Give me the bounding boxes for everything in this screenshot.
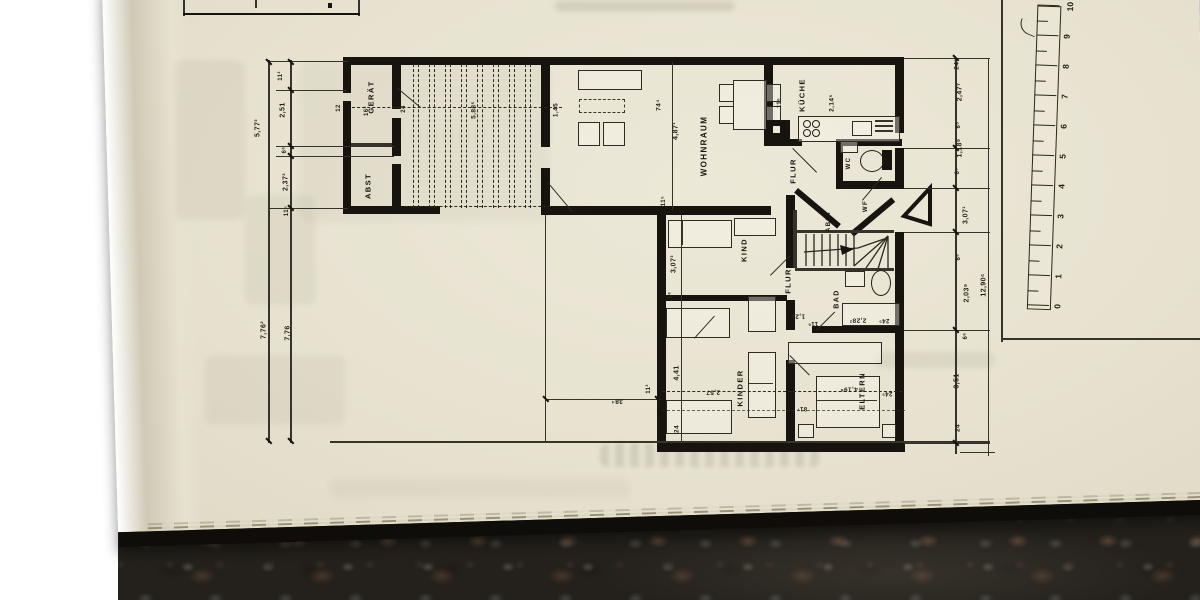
bed-pillow-line [682, 221, 683, 245]
dim-label: 2,51 [280, 102, 287, 117]
scale-number: 0 [1052, 304, 1062, 309]
dim-label: 6⁶ [668, 292, 674, 299]
dimension-line [276, 90, 346, 91]
wall-segment [657, 206, 666, 451]
scale-bar: 012345678910 [1014, 1, 1085, 321]
dim-label: 12 [336, 104, 342, 111]
dimension-line [904, 58, 990, 59]
dimension-line [268, 60, 270, 443]
dim-label: 6⁶ [963, 333, 969, 340]
bed-divider [817, 400, 877, 401]
pergola-beam [429, 64, 435, 208]
wall-segment [541, 57, 550, 147]
room-label-wohnraum: WOHNRAUM [700, 116, 709, 177]
nightstand [882, 424, 896, 438]
dim-label: 24 [674, 425, 681, 433]
furniture-armchair [603, 122, 625, 146]
wall-segment [343, 57, 904, 65]
stove-burner [812, 120, 820, 128]
wall-segment [764, 139, 802, 146]
room-label-abst-1: ABST [364, 173, 373, 199]
dim-label: 2,47⁷ [957, 83, 964, 102]
dimension-line [681, 215, 682, 441]
bad-washbasin [845, 271, 865, 287]
room-label-kinder: KINDER [736, 369, 745, 406]
dimension-line [545, 215, 546, 441]
dim-label: 11⁶ [808, 320, 818, 326]
kitchen-drainer [875, 120, 893, 122]
kitchen-drainer [875, 130, 893, 132]
scale-number: 7 [1060, 94, 1070, 99]
dim-label: 2,14⁵ [829, 94, 836, 112]
wall-segment [786, 360, 795, 445]
dim-label: 11² [278, 71, 284, 81]
dim-label: 24⁵ [954, 58, 961, 69]
room-label-kueche: KÜCHE [798, 78, 807, 112]
wall-segment [392, 164, 401, 212]
dim-label: 24⁵ [882, 390, 893, 396]
dim-label: 4,41 [674, 365, 681, 380]
scale-number: 1 [1053, 274, 1063, 279]
dim-label: 6⁶ [956, 254, 962, 261]
furniture-table [579, 99, 625, 113]
dimension-line [904, 443, 990, 444]
furniture-chair [719, 106, 734, 124]
fridge-detail [773, 126, 780, 133]
wall-segment [657, 443, 905, 452]
dimension-line [988, 58, 989, 456]
room-label-abst-2: ABST [826, 210, 832, 232]
dim-label: 3,51 [954, 373, 961, 388]
room-label-flur-1: FLUR [789, 158, 798, 184]
stair-direction-arrow [840, 245, 854, 255]
wardrobe-divider [749, 383, 773, 384]
scale-number: 2 [1054, 244, 1064, 249]
photo-of-book-floor-plan: 012345678910 GERÄTABSTWOHNRAUMKÜCHEFLURW… [0, 0, 1200, 600]
dimension-line [268, 208, 348, 209]
dim-label: 4,19⁸ [840, 386, 858, 393]
dimension-line [268, 61, 348, 62]
wall-segment [895, 148, 904, 189]
dim-label: 2,57 [706, 389, 720, 396]
dimension-line [904, 330, 990, 331]
pergola-beam [461, 64, 467, 208]
stove-burner [803, 129, 811, 137]
dim-label: 16³ [364, 106, 370, 116]
bad-toilet [871, 270, 891, 296]
wall-segment-diagonal [794, 188, 841, 229]
wall-segment [392, 118, 401, 156]
furniture-chair [719, 84, 734, 102]
cropped-drawing-mark [328, 3, 332, 8]
double-bed [816, 376, 880, 428]
dimension-line [904, 232, 990, 233]
dim-label: 6⁶ [282, 147, 288, 154]
wall-segment [541, 206, 771, 215]
dim-label: 2,28² [850, 317, 867, 324]
dim-label: 81⁷ [797, 405, 807, 411]
furniture-armchair [578, 122, 600, 146]
stove-burner [803, 120, 811, 128]
dim-label: 24 [955, 424, 962, 432]
room-label-wc: WC [846, 157, 852, 170]
dim-label: 38⁴ [611, 398, 623, 405]
dim-label: 6⁵ [956, 122, 962, 129]
wardrobe [788, 342, 882, 364]
dimension-line [960, 452, 995, 453]
scale-number: 8 [1061, 64, 1071, 69]
pergola-beam [493, 64, 499, 208]
furniture-cabinet [578, 70, 642, 90]
scale-number: 10 [1065, 2, 1075, 12]
wall-segment [812, 326, 900, 333]
kitchen-sink [852, 121, 872, 136]
sheet-border [1001, 0, 1003, 342]
dim-label: 12,90⁶ [981, 273, 988, 296]
pergola-beam [509, 64, 515, 208]
wardrobe [734, 218, 776, 236]
furniture-dining-table [733, 80, 767, 130]
dim-label: 11⁵ [661, 196, 667, 206]
bed [668, 220, 732, 248]
cropped-drawing-line [255, 0, 257, 8]
entrance-arrow [900, 184, 940, 230]
dim-label: 1,26 [791, 313, 805, 320]
dim-label: 7,76 [285, 325, 292, 340]
floor-plan-drawing: 012345678910 GERÄTABSTWOHNRAUMKÜCHEFLURW… [0, 0, 1200, 600]
dim-label: 7,76² [261, 321, 268, 339]
scale-number: 9 [1062, 34, 1072, 39]
dim-label: 2,03⁹ [964, 284, 971, 303]
room-label-kind: KIND [740, 238, 749, 262]
room-label-bad: BAD [834, 289, 841, 308]
dim-label: 3,07¹ [963, 206, 970, 224]
room-label-eltern: ELTERN [858, 372, 867, 410]
sheet-border [1001, 338, 1200, 340]
dim-label: 1,18⁹ [957, 139, 964, 158]
dim-label: 5,77³ [255, 119, 262, 137]
dimension-line [352, 107, 562, 108]
stair-treads [796, 232, 898, 272]
scale-number: 6 [1059, 124, 1069, 129]
dimension-line [290, 60, 292, 443]
stove-burner [812, 129, 820, 137]
wardrobe [748, 352, 776, 418]
dimension-line [545, 399, 661, 400]
dimension-line [662, 410, 905, 411]
dim-label: 11³ [646, 384, 652, 394]
dim-label: 3,07³ [671, 255, 678, 273]
dimension-line [330, 441, 990, 443]
scale-number: 3 [1055, 214, 1065, 219]
room-label-flur-2: FLUR [784, 268, 793, 294]
dimension-line [904, 148, 990, 149]
dim-label: 24 [401, 105, 407, 112]
kitchen-drainer [875, 125, 893, 127]
dim-label: 2,37³ [283, 173, 290, 191]
dimension-line [904, 188, 990, 189]
dim-label: 5,88⁵ [471, 101, 478, 119]
toilet-bowl [860, 150, 884, 172]
nightstand [798, 424, 814, 438]
dim-label: 11⁶ [777, 98, 783, 108]
dim-label: 4,87¹ [673, 122, 680, 140]
pergola-edge [405, 206, 551, 207]
scale-number: 4 [1056, 184, 1066, 189]
dim-label: 24⁵ [879, 317, 890, 323]
scale-number: 5 [1057, 154, 1067, 159]
dim-label: 11⁵ [284, 206, 290, 216]
wall-segment [392, 57, 401, 109]
pergola-beam [445, 64, 451, 208]
wall-segment [343, 57, 351, 93]
pergola-beam [413, 64, 419, 208]
room-label-wf: WF [863, 200, 869, 212]
dim-label: 1,45 [553, 103, 560, 117]
dim-label: 6⁵ [955, 168, 961, 175]
dim-label: 74⁴ [656, 99, 663, 111]
wardrobe [748, 296, 776, 332]
pergola-beam [477, 64, 483, 208]
wc-washbasin [840, 141, 858, 153]
pergola-beam [525, 64, 531, 208]
wall-segment [836, 181, 902, 189]
cropped-drawing-line [183, 13, 360, 15]
